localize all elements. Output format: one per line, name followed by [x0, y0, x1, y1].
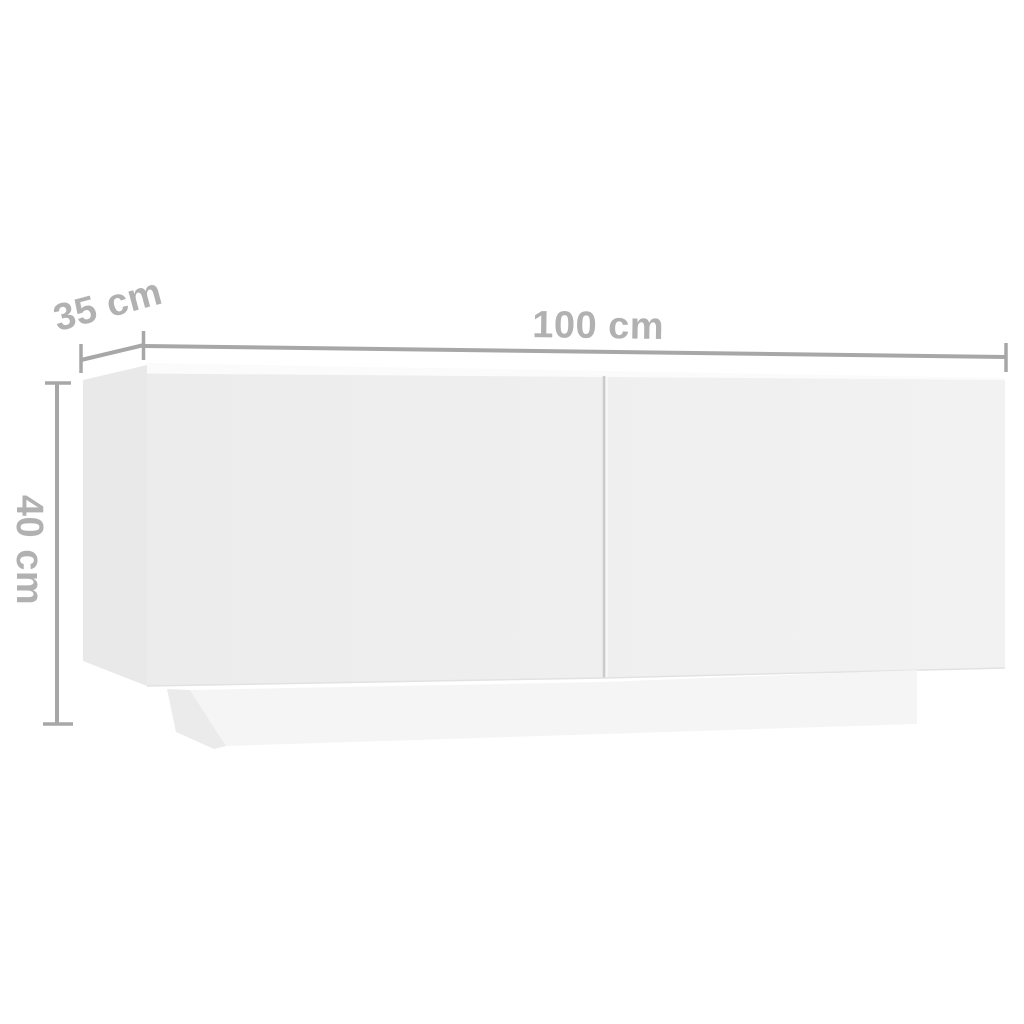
depth-dimension-label: 35 cm	[49, 271, 166, 340]
cabinet-side-panel	[83, 365, 147, 686]
dimension-diagram-canvas: 100 cm 35 cm 40 cm	[0, 0, 1024, 1024]
height-dimension-label: 40 cm	[8, 495, 50, 605]
width-dimension-line	[144, 346, 1006, 357]
width-dimension-label: 100 cm	[532, 304, 664, 348]
product-dimension-image: 100 cm 35 cm 40 cm	[0, 0, 1024, 1024]
depth-dimension-line	[81, 345, 144, 360]
cabinet-front-doors	[147, 374, 1005, 687]
cabinet	[83, 363, 1005, 686]
depth-dimension	[81, 331, 144, 373]
